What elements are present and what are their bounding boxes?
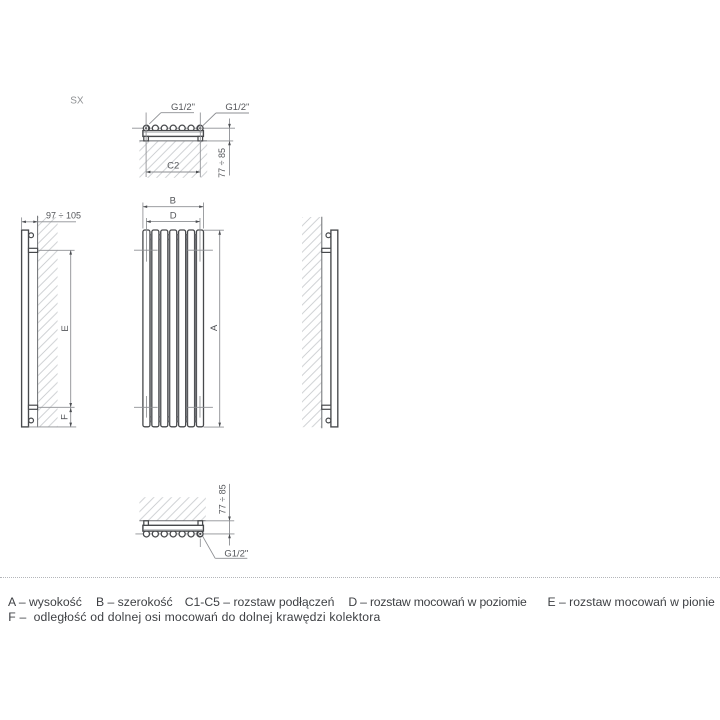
svg-text:G1/2": G1/2"	[225, 102, 249, 113]
svg-text:G1/2": G1/2"	[171, 102, 195, 113]
svg-text:A: A	[209, 324, 220, 331]
svg-text:77 ÷ 85: 77 ÷ 85	[217, 484, 227, 514]
svg-text:77 ÷ 85: 77 ÷ 85	[217, 148, 227, 178]
svg-text:97 ÷ 105: 97 ÷ 105	[46, 210, 81, 220]
svg-text:C2: C2	[167, 161, 179, 172]
svg-text:D: D	[170, 211, 177, 222]
svg-text:F: F	[59, 414, 70, 420]
svg-text:B: B	[170, 196, 176, 207]
svg-text:G1/2": G1/2"	[224, 548, 248, 559]
svg-text:E: E	[60, 325, 71, 331]
svg-text:SX: SX	[70, 95, 84, 106]
